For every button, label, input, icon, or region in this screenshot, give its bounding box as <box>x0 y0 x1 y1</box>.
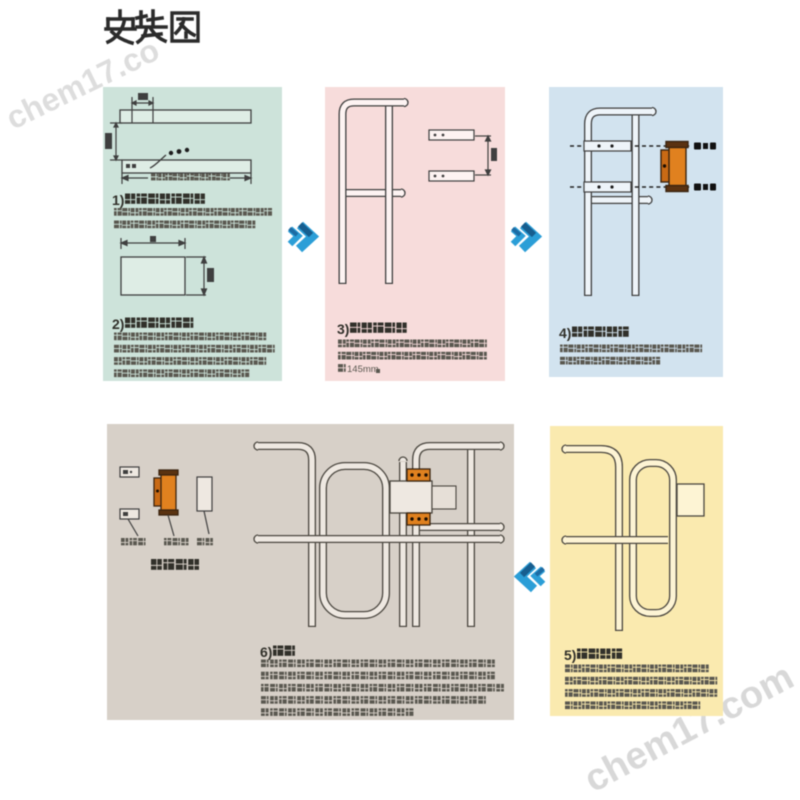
svg-text:4): 4) <box>559 325 571 341</box>
svg-text:1): 1) <box>112 192 124 208</box>
svg-text:2): 2) <box>112 316 124 332</box>
svg-text:5): 5) <box>564 647 576 663</box>
svg-text:145mm: 145mm <box>347 364 379 375</box>
svg-text:3): 3) <box>337 321 349 337</box>
svg-text:6): 6) <box>260 644 272 660</box>
